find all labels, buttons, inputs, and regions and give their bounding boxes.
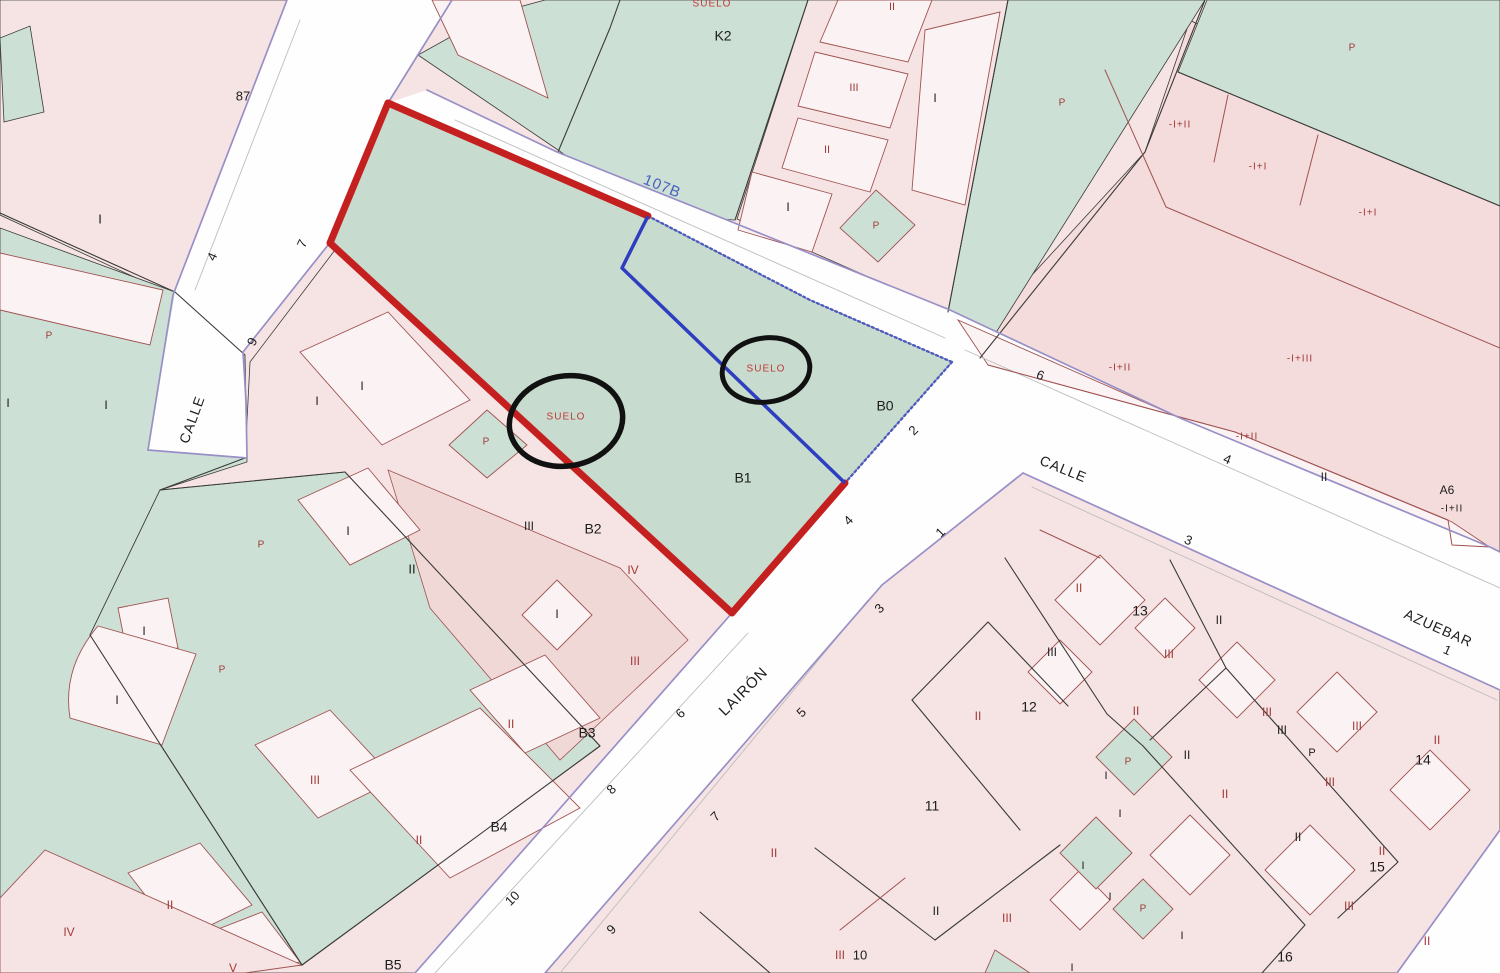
map-label: II xyxy=(771,846,778,860)
map-label: III xyxy=(524,519,534,533)
map-label: B1 xyxy=(734,470,751,486)
map-label: 16 xyxy=(1277,949,1293,965)
map-label: -I+II xyxy=(1441,504,1464,515)
map-label: III xyxy=(1262,705,1272,719)
map-label: III xyxy=(1344,899,1354,913)
map-label: IV xyxy=(627,563,638,577)
map-label: III xyxy=(310,773,320,787)
map-label: 87 xyxy=(236,88,250,103)
map-label: 12 xyxy=(1021,699,1037,715)
map-label: I xyxy=(142,624,145,638)
map-label: 14 xyxy=(1415,752,1431,768)
map-label: II xyxy=(889,1,895,13)
map-label: -I+I xyxy=(1249,162,1268,173)
map-label: II xyxy=(416,833,423,847)
map-label: B0 xyxy=(876,398,893,414)
map-label: III xyxy=(849,82,858,94)
map-label: III xyxy=(1325,775,1335,789)
map-label: II xyxy=(975,709,982,723)
map-label: -I+II xyxy=(1169,120,1192,131)
map-label: III xyxy=(835,948,845,962)
map-label: I xyxy=(360,379,363,393)
map-label: K2 xyxy=(714,28,731,44)
map-label: III xyxy=(1277,723,1287,737)
map-label: I xyxy=(933,91,936,105)
map-label: II xyxy=(1295,830,1302,844)
map-label: II xyxy=(1379,844,1386,858)
map-label: III xyxy=(630,654,640,668)
map-label: I xyxy=(1070,962,1073,973)
map-label: I xyxy=(115,693,118,707)
map-label: II xyxy=(1321,470,1328,484)
map-label: I xyxy=(786,200,789,214)
map-label: B4 xyxy=(490,819,507,835)
map-label: III xyxy=(1047,645,1057,659)
cadastral-map[interactable]: 87IP479CALLEIIISUELOK2IIIIIIIIIPPP-I+II-… xyxy=(0,0,1500,973)
map-label: I xyxy=(315,394,318,408)
map-label: -I+III xyxy=(1287,354,1313,365)
map-label: I xyxy=(104,398,107,412)
map-label: 11 xyxy=(925,798,940,814)
map-label: II xyxy=(408,561,415,576)
map-label: P xyxy=(258,540,265,551)
map-label: IV xyxy=(63,925,74,939)
cadastral-map-stage[interactable]: 87IP479CALLEIIISUELOK2IIIIIIIIIPPP-I+II-… xyxy=(0,0,1500,973)
map-label: II xyxy=(167,898,174,912)
map-label: I xyxy=(1081,860,1084,872)
map-label: SUELO xyxy=(747,364,786,375)
map-label: III xyxy=(1164,647,1174,661)
map-label: II xyxy=(1076,581,1083,595)
map-label: III xyxy=(1352,719,1362,733)
map-label: II xyxy=(508,717,515,731)
map-label: SUELO xyxy=(693,0,732,10)
map-label: I xyxy=(1118,808,1121,820)
map-label: P xyxy=(873,221,880,232)
map-label: I xyxy=(1108,891,1111,903)
map-label: 15 xyxy=(1369,859,1385,875)
map-label: 13 xyxy=(1132,603,1148,619)
map-label: A6 xyxy=(1440,483,1455,497)
map-label: P xyxy=(483,437,490,448)
map-label: I xyxy=(6,396,9,410)
map-label: -I+II xyxy=(1236,432,1259,443)
map-label: I xyxy=(98,211,102,226)
map-label: P xyxy=(1140,904,1147,915)
map-label: II xyxy=(824,144,830,156)
map-label: P xyxy=(219,665,226,676)
map-label: I xyxy=(1104,770,1107,782)
map-label: II xyxy=(933,904,940,918)
map-label: III xyxy=(1002,911,1012,925)
map-label: 10 xyxy=(853,947,867,962)
map-label: II xyxy=(1184,748,1191,762)
map-label: II xyxy=(1222,787,1229,801)
map-label: B3 xyxy=(578,725,595,741)
map-label: -I+II xyxy=(1109,363,1132,374)
map-label: I xyxy=(346,524,349,538)
map-label: P xyxy=(1125,757,1132,768)
map-label: V xyxy=(229,961,237,973)
map-label: II xyxy=(1216,613,1223,627)
map-label: I xyxy=(1180,930,1183,942)
map-label: II xyxy=(1434,733,1441,747)
map-label: II xyxy=(1424,934,1431,948)
map-label: P xyxy=(1059,98,1066,109)
map-label: B2 xyxy=(584,521,601,537)
map-label: P xyxy=(1349,43,1356,54)
map-label: I xyxy=(555,607,558,621)
map-label: P xyxy=(1308,747,1315,759)
map-label: -I+I xyxy=(1359,208,1378,219)
map-label: SUELO xyxy=(547,412,586,423)
map-label: P xyxy=(46,331,53,342)
map-label: II xyxy=(1133,704,1140,718)
map-label: B5 xyxy=(384,957,401,973)
